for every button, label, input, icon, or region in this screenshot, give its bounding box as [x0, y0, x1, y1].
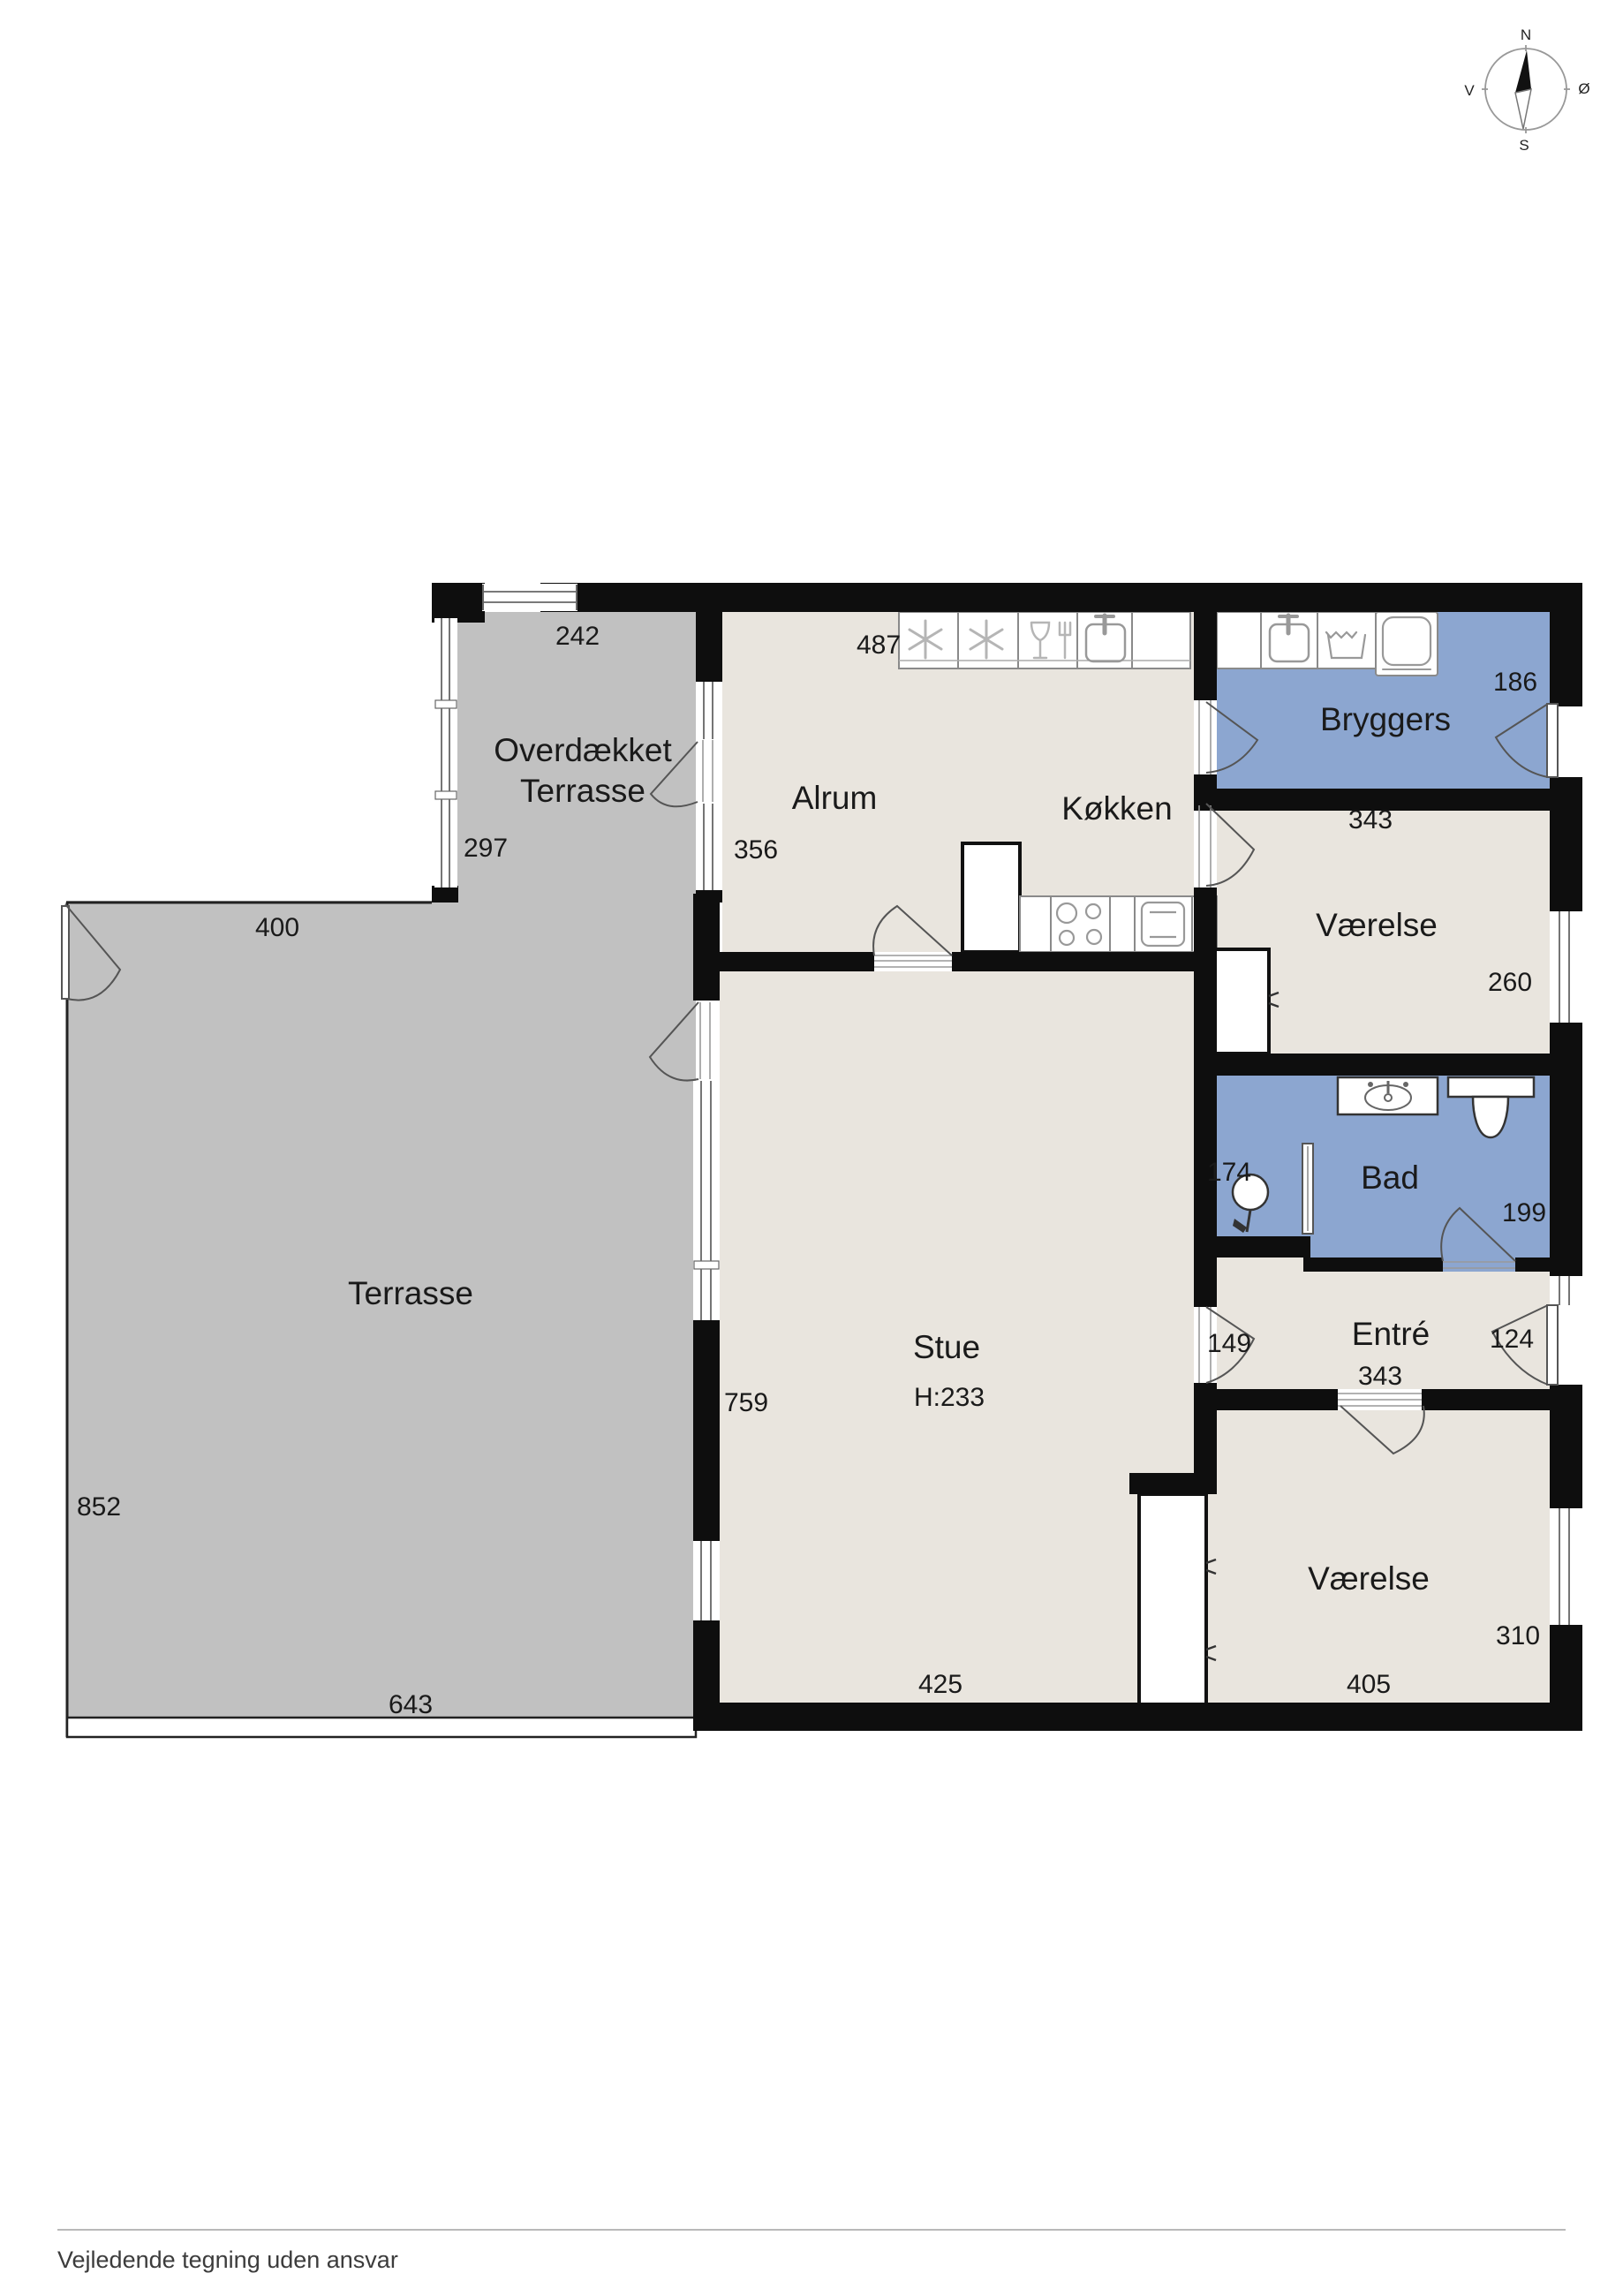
- window-bedroom-ne-east: [1550, 911, 1582, 1023]
- laundry-tub-unit: [1317, 612, 1376, 668]
- window-alrum-west-2: [696, 804, 722, 890]
- wall-bath-south-right: [1303, 1258, 1443, 1272]
- wall-bottom: [693, 1703, 1582, 1731]
- dim-174: 174: [1207, 1158, 1251, 1187]
- wall-west-mid: [693, 1320, 720, 1541]
- label-living: Stue: [913, 1329, 980, 1365]
- disclaimer-text: Vejledende tegning uden ansvar: [57, 2247, 398, 2274]
- compass-v: V: [1464, 82, 1475, 99]
- floor-plan-page: N S V Ø Overdækket Terrasse 242 297 Terr…: [0, 0, 1623, 2296]
- compass-needle-north: [1515, 50, 1531, 93]
- label-entry: Entré: [1352, 1316, 1430, 1352]
- wall-west-block: [693, 894, 720, 1001]
- cooktop-unit: [1051, 896, 1110, 952]
- wall-alrum-south-right: [952, 952, 1217, 971]
- dim-186: 186: [1493, 668, 1537, 697]
- dim-759: 759: [724, 1388, 768, 1417]
- dim-343-bryggers: 343: [1348, 805, 1393, 835]
- window-living-west-1: [693, 1081, 720, 1320]
- dim-852: 852: [77, 1492, 121, 1522]
- back-door-slab: [1547, 704, 1558, 777]
- wall-ot-divider-top: [696, 583, 722, 682]
- wall-hall-1: [1194, 612, 1217, 700]
- label-ceiling-height: H:233: [914, 1383, 985, 1412]
- label-alrum: Alrum: [792, 780, 878, 816]
- toilet-cistern: [1448, 1077, 1534, 1097]
- wall-ot-foot: [432, 886, 458, 903]
- label-bath: Bad: [1361, 1159, 1419, 1196]
- window-bedroom-se-east: [1550, 1508, 1582, 1625]
- terrace-gate-slab: [62, 906, 69, 999]
- window-ot-top: [482, 584, 577, 611]
- wall-entry-south-right: [1422, 1389, 1582, 1410]
- dim-643: 643: [389, 1690, 433, 1719]
- wall-entry-west-top: [1194, 1236, 1217, 1307]
- dim-124: 124: [1490, 1325, 1534, 1354]
- label-bedroom-ne: Værelse: [1316, 907, 1438, 943]
- dim-487: 487: [857, 631, 901, 660]
- dim-310: 310: [1496, 1621, 1540, 1650]
- window-alrum-west-1: [696, 682, 722, 739]
- window-entry-sidelight: [1550, 1276, 1582, 1305]
- wall-bedroom-ne-south: [1194, 1054, 1582, 1076]
- footer-divider: [57, 2229, 1566, 2231]
- floor-plan: N S V Ø Overdækket Terrasse 242 297 Terr…: [0, 0, 1623, 2296]
- wall-bath-west: [1194, 1055, 1217, 1241]
- window-living-west-2: [693, 1541, 720, 1620]
- compass-n: N: [1521, 26, 1531, 43]
- wall-living-jog: [1129, 1473, 1217, 1494]
- label-terrace: Terrasse: [348, 1275, 473, 1311]
- label-covered-terrace-2: Terrasse: [520, 773, 645, 809]
- dim-149: 149: [1207, 1329, 1251, 1358]
- dim-400: 400: [255, 913, 299, 942]
- label-bryggers: Bryggers: [1320, 701, 1451, 737]
- compass-o: Ø: [1578, 80, 1589, 97]
- label-covered-terrace-1: Overdækket: [494, 732, 672, 768]
- terrace-deck-edge: [67, 1718, 696, 1737]
- dim-425: 425: [918, 1670, 962, 1699]
- label-kitchen: Køkken: [1061, 790, 1172, 827]
- label-bedroom-se: Værelse: [1308, 1560, 1430, 1597]
- kitchen-island: [962, 843, 1020, 952]
- room-bedroom-se: [1206, 1410, 1550, 1704]
- wall-entry-south-left: [1217, 1389, 1338, 1410]
- wall-entry-west-bottom: [1194, 1383, 1217, 1475]
- dim-405: 405: [1347, 1670, 1391, 1699]
- front-door-slab: [1547, 1305, 1558, 1385]
- dim-356: 356: [734, 835, 778, 865]
- dim-242: 242: [555, 622, 600, 651]
- kitchen-counter-row: [899, 612, 1190, 668]
- compass-needle-south: [1515, 89, 1531, 129]
- compass-s: S: [1519, 137, 1529, 154]
- utility-counter-plain: [1217, 612, 1261, 668]
- dim-343-entry: 343: [1358, 1362, 1402, 1391]
- wall-alrum-south-left: [720, 952, 874, 971]
- dim-297: 297: [464, 834, 508, 863]
- dim-260: 260: [1488, 968, 1532, 997]
- wardrobe-bedroom-se: [1139, 1494, 1206, 1706]
- wall-east-1: [1550, 583, 1582, 706]
- wall-ot-corner: [432, 583, 485, 623]
- cooktop-oven-counter: [1020, 896, 1217, 952]
- window-ot-west: [434, 618, 457, 887]
- bryggers-counter-row: [1217, 612, 1438, 676]
- dim-199: 199: [1502, 1198, 1546, 1227]
- compass: N S V Ø: [1464, 26, 1589, 154]
- wall-bath-door-jamb: [1515, 1258, 1550, 1272]
- room-floors: [66, 612, 1550, 1718]
